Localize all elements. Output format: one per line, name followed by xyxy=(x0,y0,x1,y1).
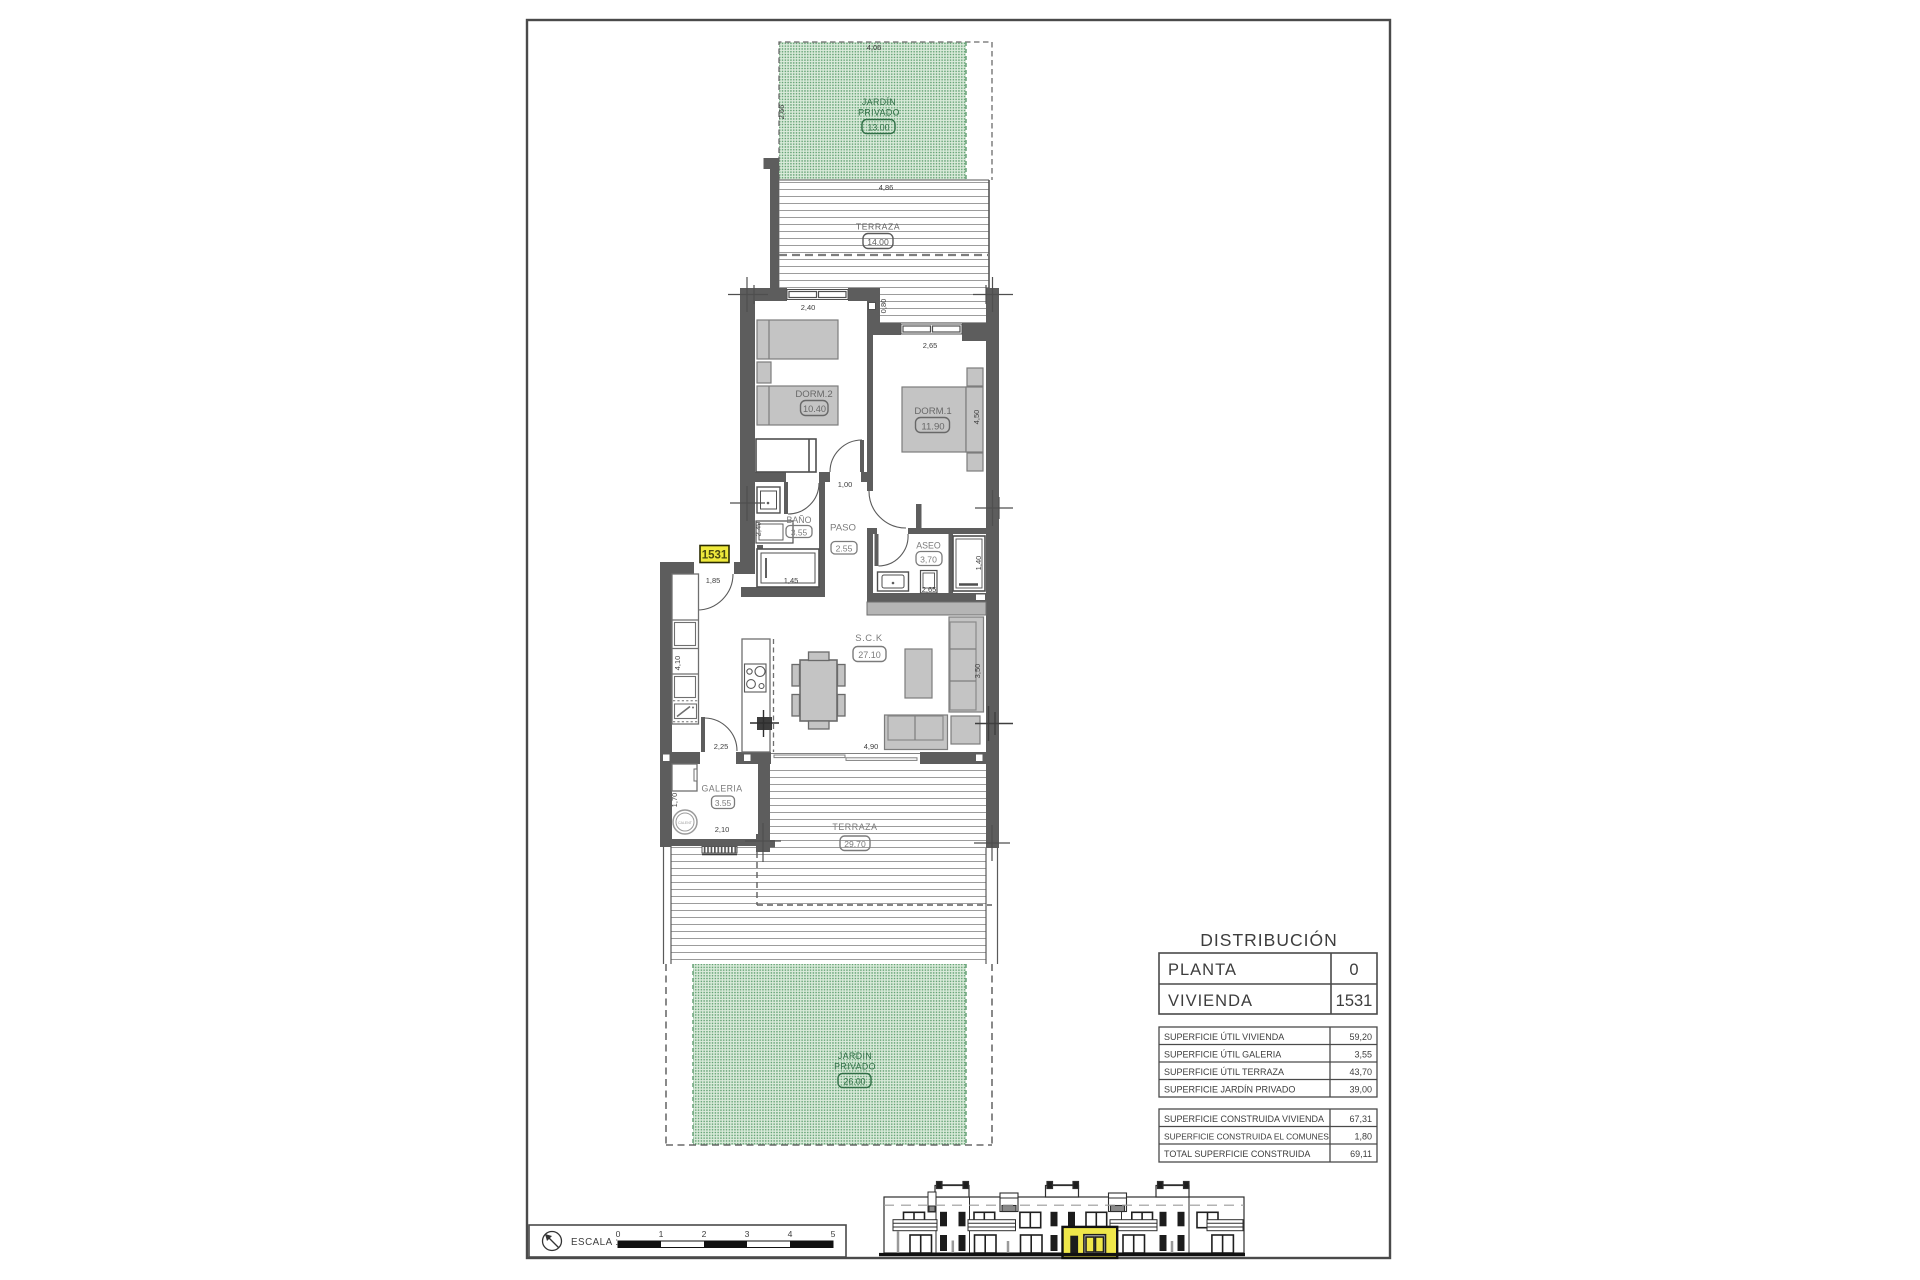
svg-text:4: 4 xyxy=(788,1229,793,1239)
svg-text:VIVIENDA: VIVIENDA xyxy=(1168,992,1253,1010)
svg-text:2,65: 2,65 xyxy=(922,585,937,594)
svg-text:0: 0 xyxy=(1349,961,1358,979)
svg-text:TERRAZA: TERRAZA xyxy=(832,822,877,832)
svg-text:3,70: 3,70 xyxy=(920,555,937,565)
svg-text:SUPERFICIE CONSTRUIDA VIVIENDA: SUPERFICIE CONSTRUIDA VIVIENDA xyxy=(1164,1114,1324,1124)
svg-text:4,06: 4,06 xyxy=(867,43,882,52)
svg-text:PASO: PASO xyxy=(830,523,856,534)
svg-text:27.10: 27.10 xyxy=(858,650,881,660)
svg-text:59,20: 59,20 xyxy=(1349,1032,1372,1042)
svg-text:2,25: 2,25 xyxy=(714,742,729,751)
svg-text:2,49: 2,49 xyxy=(754,522,763,537)
svg-text:3: 3 xyxy=(745,1229,750,1239)
svg-text:SUPERFICIE ÚTIL GALERIA: SUPERFICIE ÚTIL GALERIA xyxy=(1164,1050,1281,1060)
svg-text:2,10: 2,10 xyxy=(715,825,730,834)
svg-text:SUPERFICIE CONSTRUIDA EL COMUN: SUPERFICIE CONSTRUIDA EL COMUNES xyxy=(1164,1132,1329,1142)
svg-text:4,10: 4,10 xyxy=(673,656,682,671)
svg-text:4,90: 4,90 xyxy=(864,742,879,751)
svg-text:JARDÍN: JARDÍN xyxy=(862,97,896,107)
svg-text:1: 1 xyxy=(659,1229,664,1239)
svg-text:67,31: 67,31 xyxy=(1349,1114,1372,1124)
svg-text:SUPERFICIE ÚTIL TERRAZA: SUPERFICIE ÚTIL TERRAZA xyxy=(1164,1067,1284,1077)
svg-text:10.40: 10.40 xyxy=(803,404,826,414)
svg-text:SUPERFICIE ÚTIL VIVIENDA: SUPERFICIE ÚTIL VIVIENDA xyxy=(1164,1032,1284,1042)
svg-text:DORM.1: DORM.1 xyxy=(914,406,951,417)
svg-text:GALERIA: GALERIA xyxy=(702,784,743,794)
svg-text:S.C.K: S.C.K xyxy=(855,632,883,643)
svg-text:39,00: 39,00 xyxy=(1349,1085,1372,1095)
svg-text:DORM.2: DORM.2 xyxy=(795,389,832,400)
svg-text:43,70: 43,70 xyxy=(1349,1067,1372,1077)
svg-text:0,80: 0,80 xyxy=(879,299,888,314)
svg-text:4,86: 4,86 xyxy=(879,183,894,192)
svg-text:29.70: 29.70 xyxy=(844,839,866,849)
svg-text:1,40: 1,40 xyxy=(974,556,983,571)
svg-text:ASEO: ASEO xyxy=(916,541,941,551)
svg-text:TOTAL SUPERFICIE CONSTRUIDA: TOTAL SUPERFICIE CONSTRUIDA xyxy=(1164,1149,1310,1159)
svg-text:1,85: 1,85 xyxy=(706,576,721,585)
svg-text:1,70: 1,70 xyxy=(670,793,679,808)
svg-text:11.90: 11.90 xyxy=(921,422,944,433)
svg-text:TERRAZA: TERRAZA xyxy=(856,222,900,232)
svg-text:DISTRIBUCIÓN: DISTRIBUCIÓN xyxy=(1200,929,1337,950)
svg-text:1,80: 1,80 xyxy=(1354,1132,1372,1142)
svg-text:4,50: 4,50 xyxy=(972,410,981,425)
svg-text:2: 2 xyxy=(702,1229,707,1239)
svg-text:3.55: 3.55 xyxy=(791,528,808,538)
svg-text:BAÑO: BAÑO xyxy=(787,515,812,525)
svg-text:PRIVADO: PRIVADO xyxy=(858,108,900,118)
svg-text:1531: 1531 xyxy=(702,550,728,562)
svg-text:5: 5 xyxy=(831,1229,836,1239)
svg-text:PLANTA: PLANTA xyxy=(1168,961,1237,979)
svg-text:14.00: 14.00 xyxy=(867,237,889,247)
svg-text:1531: 1531 xyxy=(1336,992,1373,1010)
svg-text:ESCALA :: ESCALA : xyxy=(571,1237,619,1248)
svg-text:1,45: 1,45 xyxy=(784,576,799,585)
svg-text:2.55: 2.55 xyxy=(836,544,853,554)
svg-text:2,66: 2,66 xyxy=(777,105,786,120)
svg-text:JARDIN: JARDIN xyxy=(838,1051,872,1061)
svg-text:CALENT: CALENT xyxy=(678,821,693,825)
svg-text:1,00: 1,00 xyxy=(838,480,853,489)
svg-text:2,40: 2,40 xyxy=(801,303,816,312)
svg-text:PRIVADO: PRIVADO xyxy=(834,1062,876,1072)
svg-text:69,11: 69,11 xyxy=(1350,1149,1372,1159)
svg-text:26.00: 26.00 xyxy=(843,1077,865,1087)
svg-text:2,65: 2,65 xyxy=(923,341,938,350)
svg-text:3,50: 3,50 xyxy=(973,664,982,679)
svg-text:0: 0 xyxy=(616,1229,621,1239)
svg-text:3,55: 3,55 xyxy=(1354,1050,1372,1060)
svg-text:3.55: 3.55 xyxy=(715,798,732,808)
svg-text:13.00: 13.00 xyxy=(867,123,889,133)
svg-text:SUPERFICIE JARDÍN PRIVADO: SUPERFICIE JARDÍN PRIVADO xyxy=(1164,1085,1295,1095)
